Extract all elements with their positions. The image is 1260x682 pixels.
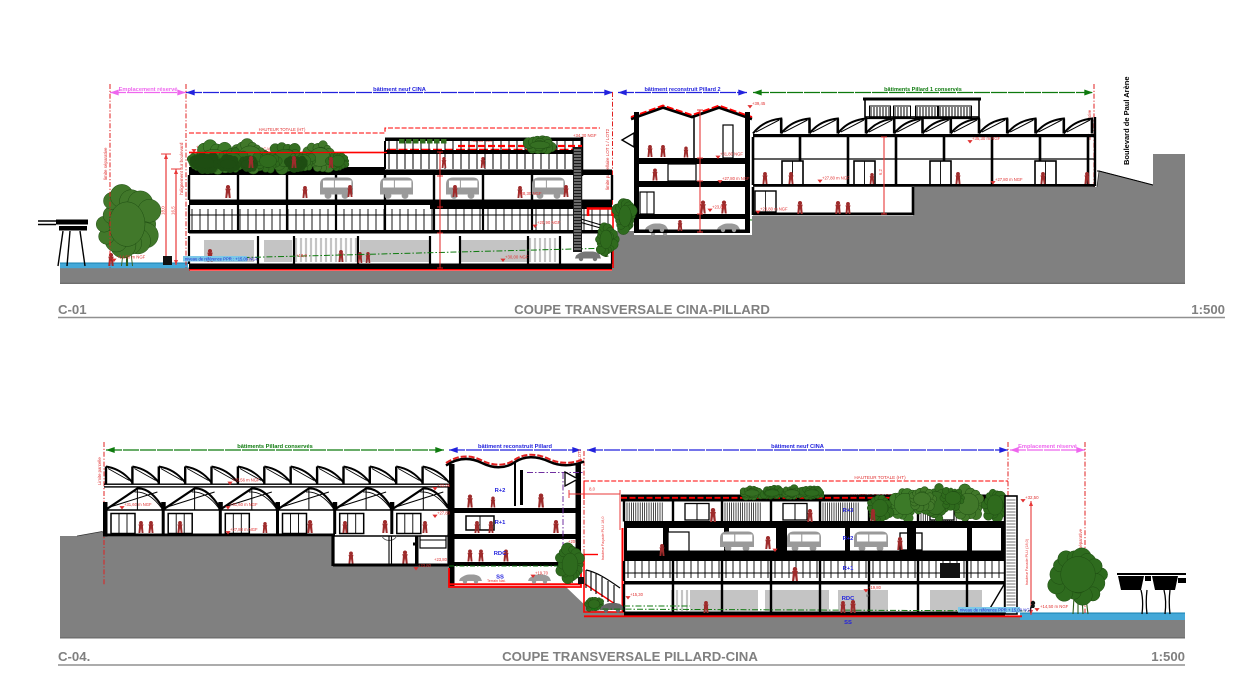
svg-text:+32,06: +32,06 (437, 483, 451, 488)
svg-text:HAUTEUR TOTALE (HT): HAUTEUR TOTALE (HT) (854, 475, 906, 480)
svg-text:+30,00 NGF: +30,00 NGF (505, 255, 529, 260)
svg-text:+15,30: +15,30 (630, 592, 644, 597)
svg-text:R+2: R+2 (495, 488, 506, 494)
svg-text:+18,0: +18,0 (296, 253, 307, 258)
svg-text:+34,30 NGF: +34,30 NGF (573, 133, 597, 138)
svg-text:+39,45: +39,45 (752, 101, 766, 106)
svg-text:R+3: R+3 (843, 508, 855, 514)
svg-text:Terrain Nat.: Terrain Nat. (487, 579, 506, 583)
svg-text:R+2: R+2 (843, 536, 854, 542)
svg-text:+27,80 m NGF: +27,80 m NGF (230, 527, 258, 532)
svg-text:+23,80: +23,80 (712, 205, 726, 210)
svg-text:COUPE TRANSVERSALE PILLARD-CIN: COUPE TRANSVERSALE PILLARD-CINA (502, 649, 758, 664)
svg-text:bâtiments Pillard 1 conservés: bâtiments Pillard 1 conservés (884, 87, 962, 93)
svg-text:+27,80: +27,80 (437, 511, 451, 516)
svg-text:niveau de référence PPR : +15,: niveau de référence PPR : +15,09 NGF (185, 257, 259, 262)
svg-text:1:500: 1:500 (1191, 302, 1225, 317)
svg-text:+14,50 m NGF: +14,50 m NGF (117, 255, 146, 260)
svg-text:niveau de référence PPR + 15,0: niveau de référence PPR + 15,09 NGF (960, 608, 1032, 613)
svg-text:+20,: +20, (568, 539, 576, 544)
svg-text:HAUTEUR TOTALE (HT): HAUTEUR TOTALE (HT) (259, 127, 306, 132)
svg-text:limite séparative: limite séparative (103, 147, 108, 180)
svg-text:C-04.: C-04. (58, 649, 90, 664)
svg-text:+23,80: +23,80 (434, 557, 448, 562)
svg-text:Emplacement réservé: Emplacement réservé (1018, 444, 1077, 450)
svg-text:8,0: 8,0 (589, 487, 595, 492)
svg-text:+19,70: +19,70 (535, 571, 549, 576)
svg-text:+31,60 m NGF: +31,60 m NGF (230, 502, 258, 507)
svg-text:+23,80 m NGF: +23,80 m NGF (760, 207, 788, 212)
svg-text:RDC: RDC (494, 551, 507, 557)
svg-text:bâtiment neuf CINA: bâtiment neuf CINA (373, 87, 426, 93)
svg-text:+19,80: +19,80 (868, 585, 882, 590)
svg-text:limite parcellaire LOT 1 / LOT: limite parcellaire LOT 1 / LOT2 (605, 128, 610, 190)
svg-text:6,2: 6,2 (878, 169, 883, 175)
svg-text:16,5: 16,5 (171, 206, 176, 215)
svg-text:bâtiments Pillard conservés: bâtiments Pillard conservés (237, 444, 313, 450)
svg-text:+35,56 m NGF: +35,56 m NGF (232, 478, 260, 483)
svg-text:COUPE TRANSVERSALE CINA-PILLAR: COUPE TRANSVERSALE CINA-PILLARD (514, 302, 770, 317)
svg-text:hauteur Façade PLU 18,0: hauteur Façade PLU 18,0 (601, 517, 605, 560)
svg-text:M: M (866, 593, 869, 598)
svg-text:+31,80 NGF: +31,80 NGF (720, 152, 743, 157)
svg-text:18,0: 18,0 (161, 206, 166, 215)
svg-text:+20,90 NGF: +20,90 NGF (537, 220, 561, 225)
svg-text:bâtiment reconstruit Pillard: bâtiment reconstruit Pillard (478, 444, 552, 450)
svg-text:hauteur Facade PLU (18,0): hauteur Facade PLU (18,0) (1025, 538, 1029, 585)
svg-text:+28,30 NGF: +28,30 NGF (518, 191, 542, 196)
svg-text:SS: SS (844, 620, 852, 626)
svg-text:+27,80 m NGF: +27,80 m NGF (995, 177, 1023, 182)
svg-text:Limite parcelle: Limite parcelle (97, 457, 102, 485)
svg-text:bâtiment reconstruit Pillard 2: bâtiment reconstruit Pillard 2 (644, 87, 720, 93)
svg-text:+32,50: +32,50 (1025, 495, 1039, 500)
svg-text:1:500: 1:500 (1151, 649, 1185, 664)
svg-text:bâtiment neuf CINA: bâtiment neuf CINA (771, 444, 824, 450)
svg-text:+27,80 m NGF: +27,80 m NGF (822, 176, 850, 181)
svg-text:+27,80 m NGF: +27,80 m NGF (722, 176, 750, 181)
svg-text:+35,30 m NGF: +35,30 m NGF (972, 136, 1001, 141)
svg-text:C-01: C-01 (58, 302, 87, 317)
svg-text:R+1: R+1 (843, 566, 855, 572)
svg-text:R+1: R+1 (495, 520, 507, 526)
svg-text:Emplacement réservé: Emplacement réservé (119, 87, 178, 93)
svg-text:+23,80: +23,80 (418, 563, 432, 568)
svg-text:+31,60 m NGF: +31,60 m NGF (124, 502, 152, 507)
svg-text:Boulevard de Paul Arène: Boulevard de Paul Arène (1122, 77, 1131, 166)
svg-text:+14,50 m NGF: +14,50 m NGF (1040, 604, 1069, 609)
